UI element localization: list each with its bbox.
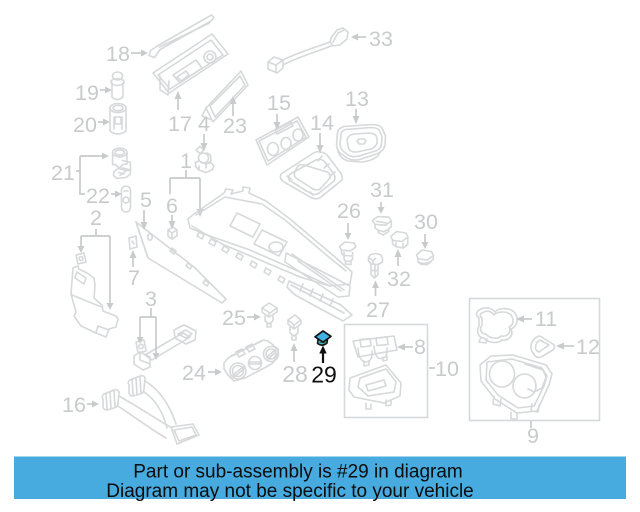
svg-text:27: 27 bbox=[366, 298, 390, 322]
svg-text:14: 14 bbox=[310, 111, 334, 135]
svg-text:29: 29 bbox=[311, 362, 337, 388]
svg-text:28: 28 bbox=[282, 361, 308, 387]
svg-text:9: 9 bbox=[527, 424, 539, 448]
svg-text:8: 8 bbox=[414, 335, 426, 359]
svg-text:30: 30 bbox=[414, 210, 438, 234]
svg-text:Diagram may not be specific to: Diagram may not be specific to your vehi… bbox=[106, 481, 474, 502]
svg-text:26: 26 bbox=[337, 199, 361, 223]
svg-text:16: 16 bbox=[62, 393, 86, 417]
svg-text:18: 18 bbox=[106, 42, 130, 66]
svg-text:3: 3 bbox=[145, 287, 157, 311]
svg-text:24: 24 bbox=[182, 361, 206, 385]
svg-text:20: 20 bbox=[73, 113, 97, 137]
svg-text:31: 31 bbox=[370, 178, 394, 202]
svg-text:7: 7 bbox=[128, 266, 140, 290]
svg-text:33: 33 bbox=[369, 27, 393, 51]
svg-text:32: 32 bbox=[387, 267, 411, 291]
svg-text:22: 22 bbox=[86, 184, 110, 208]
svg-text:19: 19 bbox=[75, 81, 99, 105]
svg-text:10: 10 bbox=[435, 357, 459, 381]
svg-text:21: 21 bbox=[51, 161, 75, 185]
svg-text:Part or sub-assembly is #29 in: Part or sub-assembly is #29 in diagram bbox=[133, 462, 462, 483]
svg-text:11: 11 bbox=[535, 307, 557, 331]
svg-text:15: 15 bbox=[267, 91, 291, 115]
svg-text:25: 25 bbox=[222, 306, 246, 330]
svg-text:4: 4 bbox=[198, 112, 210, 136]
svg-text:12: 12 bbox=[576, 335, 600, 359]
svg-text:13: 13 bbox=[345, 87, 369, 111]
svg-text:5: 5 bbox=[140, 188, 152, 212]
svg-text:23: 23 bbox=[223, 114, 247, 138]
svg-text:17: 17 bbox=[168, 112, 192, 136]
svg-text:1: 1 bbox=[180, 149, 192, 173]
svg-text:2: 2 bbox=[90, 206, 102, 230]
svg-text:6: 6 bbox=[166, 194, 178, 218]
